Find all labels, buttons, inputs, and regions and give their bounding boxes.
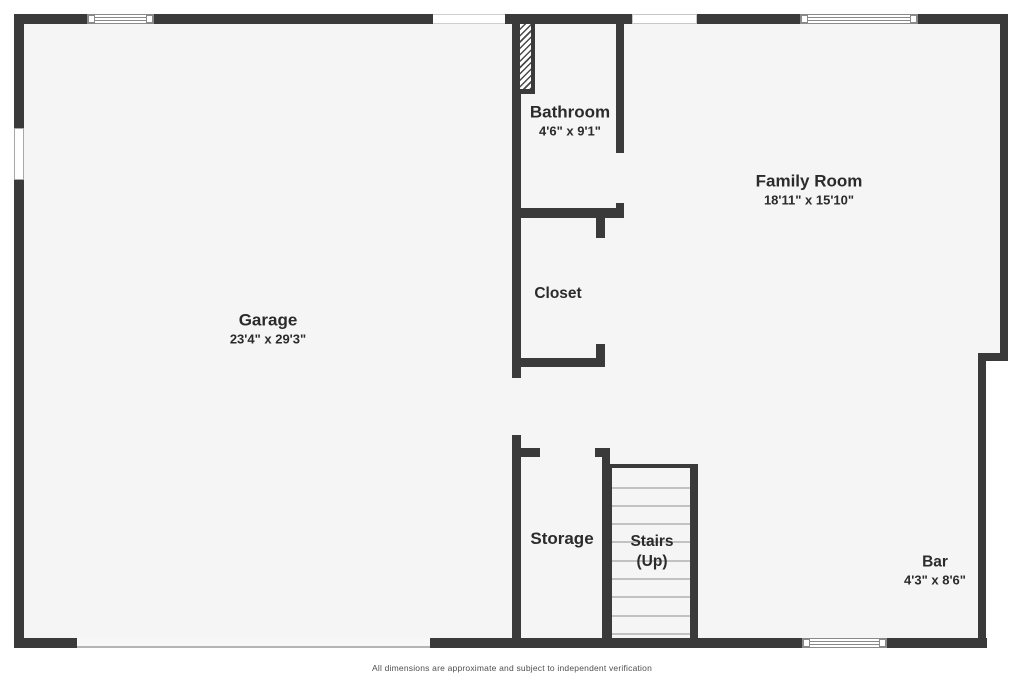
stairs-border bbox=[609, 464, 612, 638]
room-name: Bathroom bbox=[530, 102, 610, 124]
room-name: Bar bbox=[904, 552, 966, 572]
room-name: Closet bbox=[534, 284, 581, 304]
wall bbox=[512, 358, 605, 367]
room-name: Garage bbox=[230, 310, 306, 332]
stairs-border bbox=[609, 464, 698, 468]
window-frame bbox=[88, 15, 95, 23]
window-pane bbox=[95, 17, 146, 21]
window-frame bbox=[801, 15, 808, 23]
stair-tread bbox=[612, 487, 690, 489]
wall bbox=[14, 180, 24, 648]
garage-door-opening bbox=[77, 638, 430, 648]
room-label-storage: Storage bbox=[530, 528, 593, 550]
window-frame bbox=[803, 639, 810, 647]
room-label-family-room: Family Room 18'11" x 15'10" bbox=[756, 171, 863, 210]
wall bbox=[14, 638, 77, 648]
room-label-stairs: Stairs (Up) bbox=[630, 532, 673, 572]
wall bbox=[596, 218, 605, 238]
hatched-area-icon bbox=[519, 24, 535, 94]
window-pane bbox=[808, 17, 910, 21]
wall bbox=[14, 14, 87, 24]
wall bbox=[14, 14, 24, 128]
stair-tread bbox=[612, 505, 690, 507]
room-label-bathroom: Bathroom 4'6" x 9'1" bbox=[530, 102, 610, 141]
wall bbox=[512, 435, 521, 638]
room-dimensions: 4'3" x 8'6" bbox=[904, 573, 966, 590]
window-frame bbox=[146, 15, 153, 23]
room-dimensions: 23'4" x 29'3" bbox=[230, 332, 306, 349]
room-dimensions: 18'11" x 15'10" bbox=[756, 193, 863, 210]
floor-plan: Garage 23'4" x 29'3" Bathroom 4'6" x 9'1… bbox=[0, 0, 1024, 676]
wall bbox=[978, 353, 986, 648]
wall bbox=[697, 14, 800, 24]
wall bbox=[512, 208, 624, 218]
room-name: Stairs bbox=[630, 532, 673, 552]
stairs-border bbox=[690, 464, 698, 638]
room-label-bar: Bar 4'3" x 8'6" bbox=[904, 552, 966, 589]
window-frame bbox=[910, 15, 917, 23]
door-opening bbox=[632, 14, 697, 24]
disclaimer-text: All dimensions are approximate and subje… bbox=[372, 663, 652, 673]
room-label-closet: Closet bbox=[534, 284, 581, 304]
wall bbox=[430, 638, 802, 648]
floor-area-lower bbox=[24, 361, 978, 638]
wall bbox=[154, 14, 433, 24]
room-name: Storage bbox=[530, 528, 593, 550]
room-dimensions: 4'6" x 9'1" bbox=[530, 124, 610, 141]
stair-tread bbox=[612, 596, 690, 598]
window-pane bbox=[810, 641, 879, 645]
room-name: Family Room bbox=[756, 171, 863, 193]
wall bbox=[616, 24, 624, 153]
wall bbox=[1000, 14, 1008, 361]
window-icon bbox=[14, 128, 24, 180]
window-frame bbox=[879, 639, 886, 647]
window-icon bbox=[802, 638, 887, 648]
window-icon bbox=[800, 14, 918, 24]
stair-tread bbox=[612, 615, 690, 617]
wall bbox=[918, 14, 1008, 24]
wall bbox=[512, 448, 540, 457]
stairs-direction: (Up) bbox=[630, 552, 673, 572]
wall bbox=[887, 638, 987, 648]
stair-tread bbox=[612, 633, 690, 635]
window-icon bbox=[87, 14, 154, 24]
stair-tread bbox=[612, 578, 690, 580]
stair-tread bbox=[612, 523, 690, 525]
door-opening bbox=[433, 14, 505, 24]
room-label-garage: Garage 23'4" x 29'3" bbox=[230, 310, 306, 349]
wall bbox=[505, 14, 632, 24]
